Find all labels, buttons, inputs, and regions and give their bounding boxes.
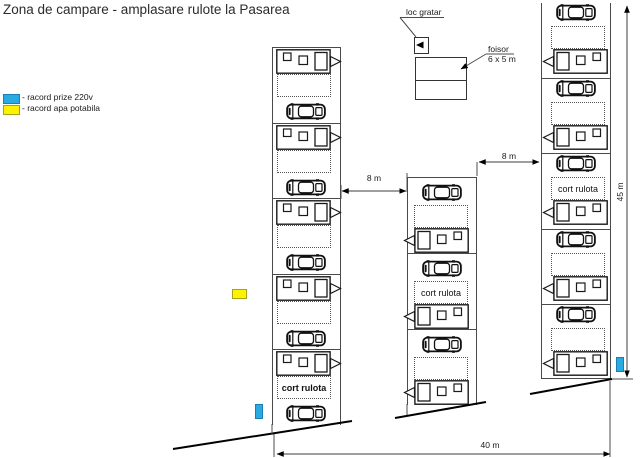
tent-area <box>551 26 605 49</box>
gazebo-rect <box>415 57 467 100</box>
tent-area <box>277 225 331 248</box>
tent-area <box>414 357 468 380</box>
car-icon <box>286 179 326 196</box>
car-icon <box>286 254 326 271</box>
caravan-icon <box>276 200 342 225</box>
dimension-label-width: 40 m <box>468 440 512 450</box>
grill-square <box>414 37 429 54</box>
road-line-left <box>173 421 352 449</box>
tent-label: cort rulota <box>421 288 461 298</box>
tent-label: cort rulota <box>282 383 327 393</box>
camp-spot <box>542 304 610 379</box>
tent-area <box>277 301 331 324</box>
dimension-label-gap-right: 8 m <box>492 151 526 161</box>
gazebo-size-label: 6 x 5 m <box>488 55 516 64</box>
tent-label: cort rulota <box>558 184 598 194</box>
camp-spot <box>408 329 476 405</box>
car-icon <box>422 336 462 353</box>
power-outlet-marker-left <box>255 404 263 419</box>
camp-spot <box>542 3 610 78</box>
road-line-right <box>530 379 612 394</box>
water-legend-swatch <box>3 105 20 115</box>
camp-spot: cort rulota <box>542 153 610 228</box>
car-icon <box>286 405 326 422</box>
caravan-icon <box>403 380 469 405</box>
car-icon <box>286 330 326 347</box>
water-legend-label: - racord apa potabila <box>22 104 100 113</box>
power-legend-swatch <box>3 94 20 104</box>
page-title: Zona de campare - amplasare rulote la Pa… <box>3 2 290 17</box>
caravan-icon <box>276 125 342 150</box>
camp-spot <box>273 123 340 199</box>
camp-column-left: cort rulota <box>272 47 341 425</box>
tent-area <box>551 253 605 276</box>
gazebo-label: foisor <box>488 45 509 54</box>
car-icon <box>556 306 596 323</box>
water-tap-marker <box>232 289 247 299</box>
gazebo-divider <box>416 80 466 81</box>
caravan-icon <box>276 276 342 301</box>
caravan-icon <box>542 49 608 74</box>
caravan-icon <box>276 49 342 74</box>
tent-area: cort rulota <box>551 177 605 200</box>
caravan-icon <box>542 125 608 150</box>
tent-area <box>277 74 331 97</box>
grill-leader-line <box>400 18 416 38</box>
camp-spot <box>273 274 340 350</box>
dimension-label-depth: 45 m <box>615 172 625 212</box>
car-icon <box>286 103 326 120</box>
camp-spot <box>542 78 610 153</box>
camp-spot <box>408 177 476 253</box>
car-icon <box>422 260 462 277</box>
camp-spot <box>273 47 340 123</box>
car-icon <box>556 231 596 248</box>
camp-spot: cort rulota <box>273 349 340 425</box>
camp-spot <box>273 198 340 274</box>
tent-area <box>551 102 605 125</box>
car-icon <box>422 184 462 201</box>
caravan-icon <box>403 228 469 253</box>
car-icon <box>556 4 596 21</box>
grill-label: loc gratar <box>406 8 441 17</box>
dimension-label-gap-left: 8 m <box>357 173 391 183</box>
tent-area <box>414 205 468 228</box>
camp-column-middle: cort rulota <box>407 177 477 405</box>
caravan-icon <box>542 276 608 301</box>
tent-area: cort rulota <box>277 376 331 399</box>
caravan-icon <box>542 200 608 225</box>
power-legend-label: - racord prize 220v <box>22 93 93 102</box>
camp-spot: cort rulota <box>408 253 476 329</box>
tent-area: cort rulota <box>414 281 468 304</box>
site-plan: Zona de campare - amplasare rulote la Pa… <box>0 0 640 458</box>
power-outlet-marker-right <box>616 357 624 372</box>
camp-column-right: cort rulota <box>541 3 611 379</box>
tent-area <box>277 150 331 173</box>
car-icon <box>556 80 596 97</box>
caravan-icon <box>276 351 342 376</box>
tent-area <box>551 328 605 351</box>
car-icon <box>556 155 596 172</box>
caravan-icon <box>403 304 469 329</box>
camp-spot <box>542 229 610 304</box>
caravan-icon <box>542 351 608 376</box>
